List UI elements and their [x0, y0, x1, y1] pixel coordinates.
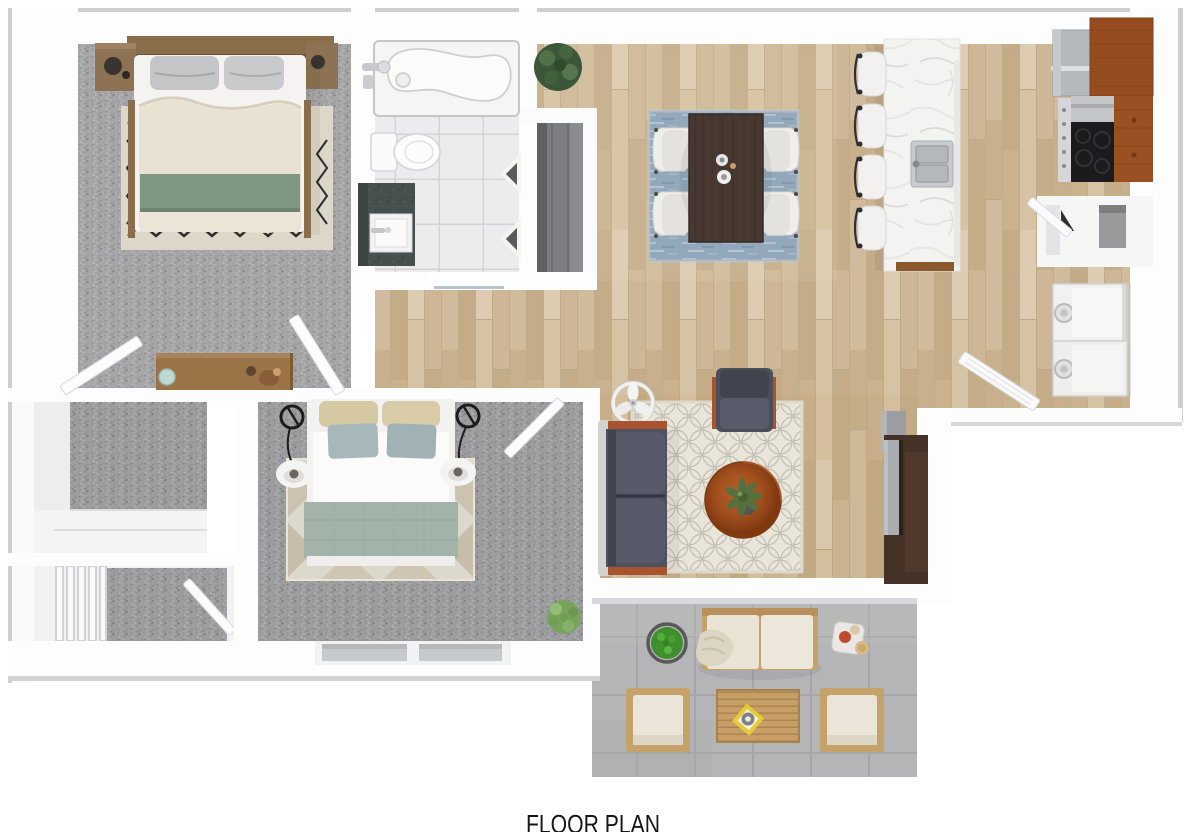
svg-text:FLOOR PLAN: FLOOR PLAN — [526, 809, 660, 832]
